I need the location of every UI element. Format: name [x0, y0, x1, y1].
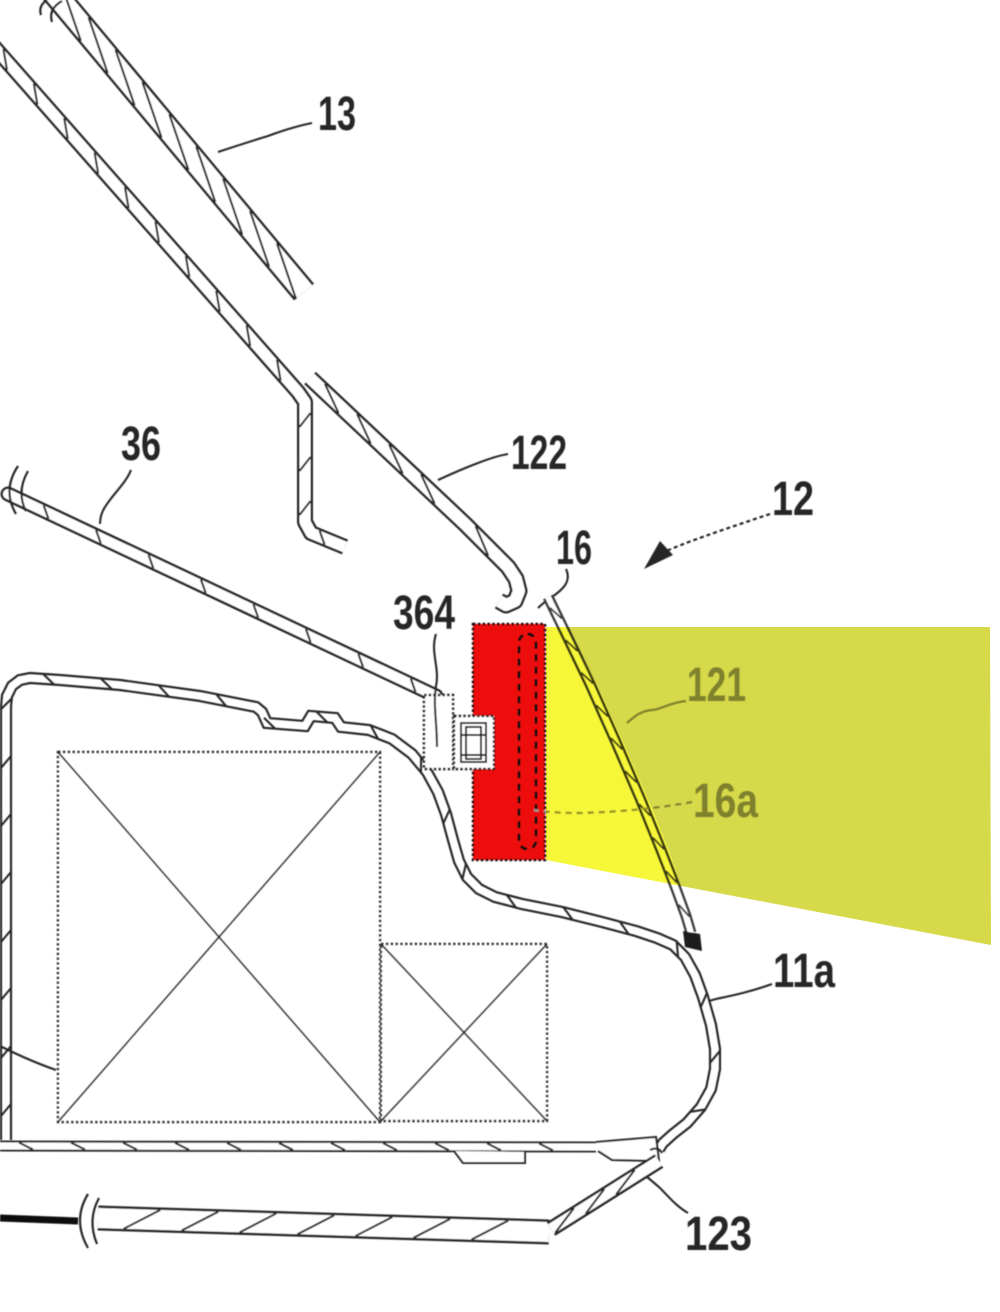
- svg-text:36: 36: [121, 418, 161, 471]
- svg-text:16: 16: [556, 522, 592, 575]
- svg-text:12: 12: [772, 473, 814, 526]
- svg-text:11a: 11a: [773, 945, 835, 998]
- svg-text:122: 122: [511, 427, 567, 480]
- svg-text:123: 123: [685, 1208, 752, 1261]
- svg-text:13: 13: [318, 88, 356, 141]
- svg-text:364: 364: [393, 587, 455, 640]
